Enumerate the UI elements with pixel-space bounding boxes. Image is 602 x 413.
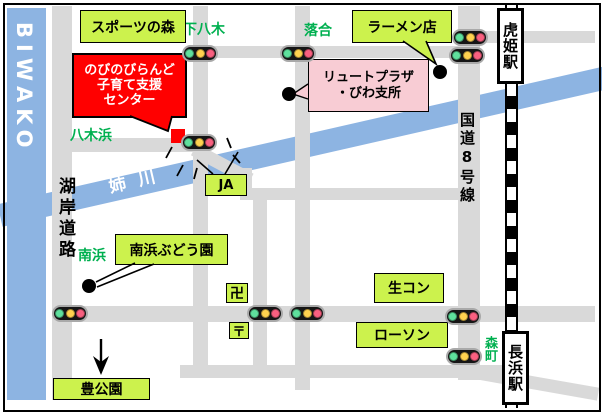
poi-post-mark: 〒: [229, 322, 249, 339]
area-shimoyagi: 下八木: [183, 19, 225, 39]
destination-line2: 子育て支援: [97, 78, 162, 93]
traffic-light-icon: [289, 305, 325, 322]
office-line1: リュートプラザ: [323, 70, 414, 86]
traffic-light-icon: [446, 348, 482, 365]
grape-farm-location-dot: [82, 279, 96, 293]
poi-ramen: ラーメン店: [352, 10, 452, 43]
destination-bubble: のびのびらんど 子育て支援 センター: [72, 53, 187, 118]
traffic-light-icon: [452, 29, 488, 46]
traffic-light-icon: [445, 308, 481, 325]
ramen-location-dot: [433, 65, 447, 79]
nagahama-diagonal-road: [474, 366, 599, 401]
nagahama-station: 長浜駅: [502, 331, 529, 405]
vertical-road-temple: [253, 192, 267, 375]
lake-label: BIWAKO: [12, 22, 36, 153]
traffic-light-icon: [280, 45, 316, 62]
traffic-light-icon: [449, 47, 485, 64]
area-minamihama: 南浜: [78, 245, 106, 265]
poi-namakon: 生コン: [374, 273, 444, 303]
traffic-light-icon: [52, 305, 88, 322]
poi-grape-farm: 南浜ぶどう園: [115, 234, 228, 265]
top-road: [193, 46, 470, 58]
area-morimachi: 森町: [480, 336, 499, 362]
route8-road-label: 国道8号線: [457, 112, 478, 205]
office-line2: ・びわ支所: [336, 86, 401, 102]
area-yagihama: 八木浜: [70, 125, 112, 145]
destination-line3: センター: [103, 93, 155, 108]
poi-ja: JA: [205, 174, 247, 196]
middle-road: [240, 188, 465, 200]
access-map: BIWAKO 姉川 湖岸道路 国道8号線 虎姫駅 長浜駅 下八木 落合 八木浜 …: [0, 0, 602, 413]
grape-farm-callout-lines: [96, 263, 154, 287]
toyo-park-arrow-head: [93, 356, 109, 375]
office-location-dot: [282, 87, 296, 101]
destination-bubble-tail: [130, 116, 172, 131]
traffic-light-icon: [182, 45, 218, 62]
poi-temple-mark: 卍: [226, 283, 248, 303]
traffic-light-icon: [181, 134, 217, 151]
poi-toyo-park: 豊公園: [53, 378, 150, 400]
kogan-road-label: 湖岸道路: [53, 177, 78, 261]
lower-road: [180, 365, 505, 378]
destination-line1: のびのびらんど: [84, 63, 175, 78]
torahime-station: 虎姫駅: [497, 8, 524, 84]
poi-lawson: ローソン: [356, 322, 448, 348]
area-ochiai: 落合: [304, 20, 332, 40]
office-bubble: リュートプラザ ・びわ支所: [308, 59, 429, 112]
traffic-light-icon: [247, 305, 283, 322]
poi-sports-forest: スポーツの森: [80, 10, 186, 43]
